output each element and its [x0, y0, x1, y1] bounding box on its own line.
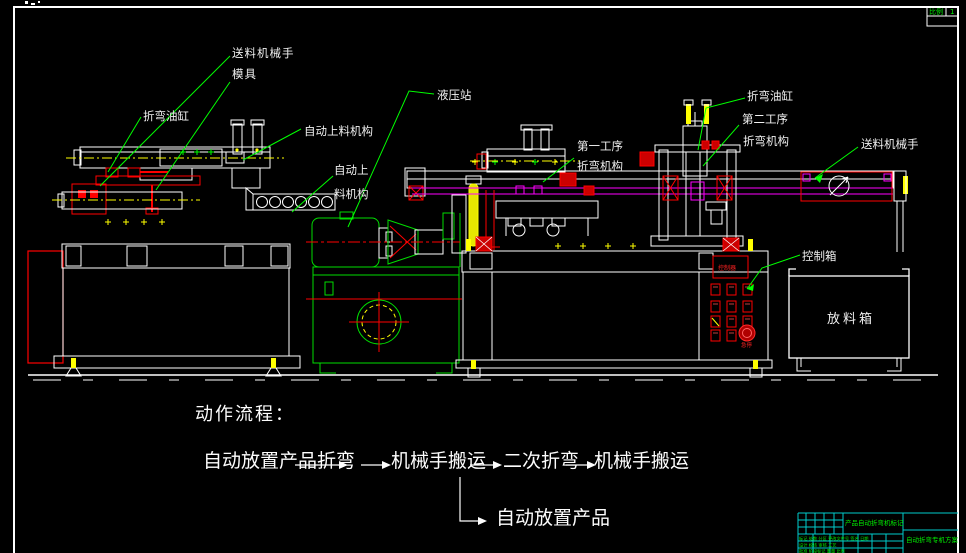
- flow-branch-line: [460, 477, 478, 521]
- hydraulic-station: [306, 212, 462, 373]
- flow-branch-step: 自动放置产品: [496, 509, 610, 528]
- label-auto-feed-upper: 自动上料机构: [304, 125, 373, 137]
- right-bench: [456, 237, 772, 377]
- flow-step-5: 机械手搬运: [594, 452, 689, 471]
- label-bend-cylinder-left: 折弯油缸: [143, 110, 189, 122]
- title-block-row3: 批准 阶段标记 重量 比例: [799, 548, 845, 553]
- label-process1-line1: 第一工序: [577, 140, 623, 152]
- label-process2-line2: 折弯机构: [743, 135, 789, 147]
- process2-mechanism: [651, 100, 743, 246]
- title-block: 产品自动折弯机标记 自动折弯专机方案 标记 处数 分区 更改文件号 签名 日期 …: [798, 513, 959, 553]
- control-panel: 控制器 急停: [711, 256, 755, 349]
- label-feed-manipulator-left: 送料机械手: [232, 47, 295, 59]
- flow-step-4: 二次折弯: [503, 452, 579, 471]
- flow-step-3: 机械手搬运: [391, 452, 486, 471]
- title-block-part-label: 产品自动折弯机标记: [845, 518, 904, 527]
- label-hydraulic-station: 液压站: [437, 89, 472, 101]
- flow-step-1: 自动放置产品: [203, 452, 317, 471]
- corner-value: 1: [950, 8, 954, 16]
- flow-title: 动作流程：: [195, 400, 295, 426]
- label-bend-cylinder-right: 折弯油缸: [747, 90, 793, 102]
- estop-label: 急停: [741, 341, 753, 349]
- label-control-box: 控制箱: [802, 250, 837, 262]
- title-block-row1: 标记 处数 分区 更改文件号 签名 日期: [799, 535, 868, 542]
- cad-drawing-canvas[interactable]: 比例 1: [0, 0, 966, 553]
- label-discharge-box: 放料箱: [827, 308, 875, 327]
- title-block-row2: 设计 校核 审核 工艺: [799, 542, 837, 549]
- label-feed-manipulator-right: 送料机械手: [861, 138, 919, 150]
- title-block-scheme-name: 自动折弯专机方案: [906, 535, 959, 544]
- ground-line: [28, 375, 938, 380]
- flow-step-2: 折弯: [317, 452, 355, 471]
- corner-scale-box: 比例 1: [927, 7, 958, 26]
- label-mold: 模具: [232, 68, 257, 80]
- label-process1-line2: 折弯机构: [577, 160, 623, 172]
- label-auto-feed-lower-2: 料机构: [334, 188, 369, 200]
- label-auto-feed-lower-1: 自动上: [334, 164, 369, 176]
- label-process2-line1: 第二工序: [742, 113, 788, 125]
- corner-label: 比例: [929, 7, 943, 16]
- left-red-box: [28, 251, 63, 363]
- control-screen-label: 控制器: [718, 264, 736, 272]
- left-bench: [54, 244, 300, 376]
